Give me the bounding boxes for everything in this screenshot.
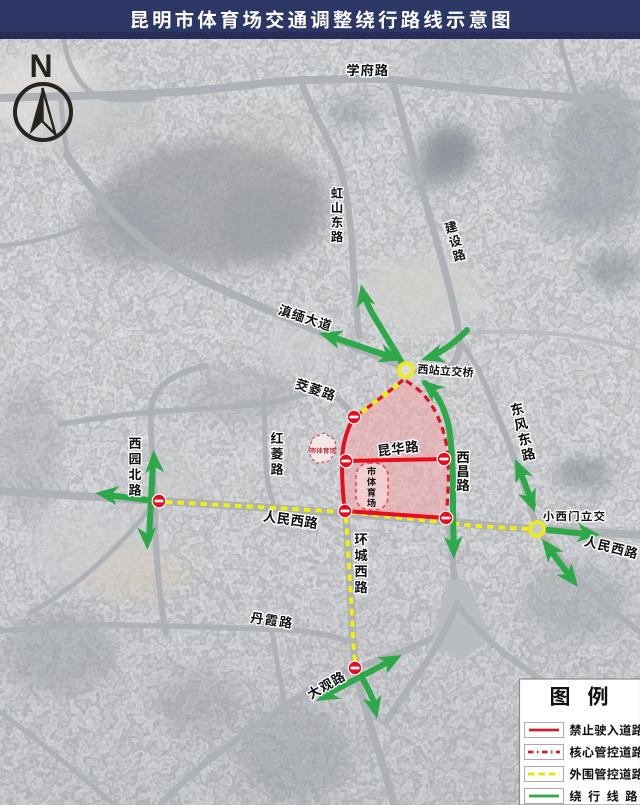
svg-text:N: N [29, 48, 52, 84]
